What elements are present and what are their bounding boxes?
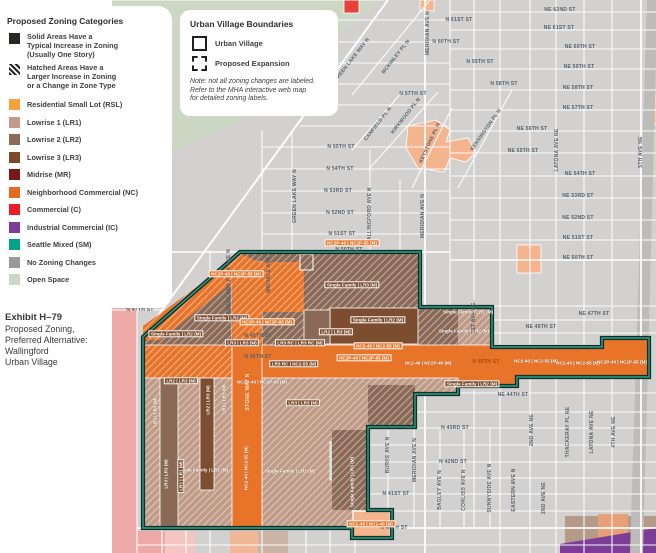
boundary-legend-item: Proposed Expansion xyxy=(190,56,330,71)
legend-item-label: Midrise (MR) xyxy=(27,170,71,179)
zone-label: LR3 | LR3 (M) xyxy=(163,459,168,488)
zone-label: NC2-40 | NC2-55 (M) xyxy=(243,446,248,490)
zone-label: NC2P-40 | NC2P-65 (M) xyxy=(597,359,647,364)
zone-color-swatch-icon xyxy=(9,117,20,128)
street-label: 5TH AVE NE xyxy=(638,136,644,167)
street-label: NE 54TH ST xyxy=(565,171,596,177)
legend-item: Commercial (C) xyxy=(7,201,168,219)
zone-label: LR2 | LR3 (M) xyxy=(319,328,353,335)
zone-color-swatch-icon xyxy=(9,239,20,250)
street-label: N 57TH ST xyxy=(399,91,426,97)
zone-lr2-hatch-overlay xyxy=(368,385,415,427)
street-label: MERIDIAN AVE N xyxy=(420,194,426,238)
street-label: 4TH AVE NE xyxy=(611,416,617,447)
boundary-legend-panel: Urban Village Boundaries Urban VillagePr… xyxy=(180,10,338,116)
pink-block xyxy=(137,531,165,553)
street-label: CORLISS AVE N xyxy=(461,469,467,511)
zone-label: Single Family | LR1 (M) xyxy=(443,309,493,314)
street-label: THACKERAY PL NE xyxy=(565,407,571,458)
zone-label: Single Family | LR2 (M) xyxy=(148,330,203,337)
street-label: BURKE AVE N xyxy=(385,437,391,474)
legend-explainer-text: Solid Areas Have aTypical Increase in Zo… xyxy=(27,33,118,59)
zone-label: Single Family | LR2 (M) xyxy=(439,328,489,333)
zone-color-swatch-icon xyxy=(9,204,20,215)
zone-label: NC2-40 | NC2P-40 (M) xyxy=(405,360,452,365)
street-label: LATONA AVE NE xyxy=(589,411,595,454)
zone-nc-corridor-hatch xyxy=(143,345,232,378)
zone-label: NC2P-40 | NC2P-55 (M) xyxy=(209,270,264,277)
street-label: NE 50TH ST xyxy=(563,255,594,261)
zone-label: Single Family | LR3 (M) xyxy=(324,281,379,288)
zone-label: NC2P-40 | NC2P-65 (M) xyxy=(237,379,287,384)
legend-item: No Zoning Changes xyxy=(7,253,168,271)
zone-label: LR3 RC | LR3 RC (M) xyxy=(275,339,325,346)
legend-item: Residential Small Lot (RSL) xyxy=(7,96,168,114)
zone-label: NC2P-40 | NC2P-65 (M) xyxy=(240,318,295,325)
boundary-legend-title: Urban Village Boundaries xyxy=(190,19,330,29)
zone-label: Single Family | LR2 (M) xyxy=(350,316,405,323)
street-label: N 54TH ST xyxy=(326,166,353,172)
zone-label: NC2P-40 | NC2P-55 (M) xyxy=(337,354,392,361)
zone-color-swatch-icon xyxy=(9,134,20,145)
street-label: WALLINGFORD AVE N xyxy=(367,187,373,245)
legend-item-label: Commercial (C) xyxy=(27,205,81,214)
legend-item-label: Lowrise 1 (LR1) xyxy=(27,118,81,127)
street-label: EASTERN AVE N xyxy=(511,468,517,511)
street-label: N 45TH ST xyxy=(244,354,271,360)
zone-color-swatch-icon xyxy=(9,274,20,285)
pink-block xyxy=(165,531,195,553)
zone-color-swatch-icon xyxy=(9,222,20,233)
zone-lr3-block xyxy=(330,308,418,344)
street-label: NE 47TH ST xyxy=(579,311,610,317)
street-label: NE 53RD ST xyxy=(562,193,593,199)
legend-explainer-line: or a Change in Zone Type xyxy=(27,82,116,91)
street-label: N 53RD ST xyxy=(324,188,352,194)
legend-item-label: Residential Small Lot (RSL) xyxy=(27,100,122,109)
boundary-note-line: for detailed zoning labels. xyxy=(190,95,330,104)
zone-label: LR1 | LR1 (M) xyxy=(177,459,184,493)
exhibit-line: Preferred Alternative: xyxy=(5,335,111,346)
zone-label: NC2-40 | NC2-55 (M) xyxy=(354,342,403,349)
legend-item: Industrial Commercial (IC) xyxy=(7,218,168,236)
legend-item: Neighborhood Commercial (NC) xyxy=(7,183,168,201)
zone-label: LR2 | LR3 (M) xyxy=(221,384,226,413)
zone-expansion-box-hatch xyxy=(300,254,313,270)
legend-explainer-line: (Usually One Story) xyxy=(27,51,118,60)
legend-item: Lowrise 3 (LR3) xyxy=(7,148,168,166)
street-label: NE 51ST ST xyxy=(563,235,594,241)
urban-village-outline-icon xyxy=(192,36,207,51)
legend-item: Seattle Mixed (SM) xyxy=(7,236,168,254)
boundary-legend-items: Urban VillageProposed Expansion xyxy=(190,36,330,71)
street-label: NE 57TH ST xyxy=(563,105,594,111)
exhibit-line: Proposed Zoning, xyxy=(5,324,111,335)
street-label: N 50TH ST xyxy=(335,247,362,253)
street-label: BAGLEY AVE N xyxy=(437,470,443,510)
street-label: N 51ST ST xyxy=(329,231,356,237)
legend-item-label: No Zoning Changes xyxy=(27,258,96,267)
street-label: GREEN LAKE WAY N xyxy=(292,169,298,223)
street-label: N 59TH ST xyxy=(466,59,493,65)
boundary-legend-note: Note: not all zoning changes are labeled… xyxy=(190,78,330,104)
zone-label: Single Family | LR1 (M) xyxy=(178,467,228,472)
street-label: N 61ST ST xyxy=(446,17,473,23)
street-label: N 52ND ST xyxy=(326,210,354,216)
zoning-legend-panel: Proposed Zoning Categories Solid Areas H… xyxy=(0,6,172,308)
street-label: NE 52ND ST xyxy=(562,215,593,221)
street-label: LATONA AVE NE xyxy=(554,129,560,172)
zone-label: LR2 | LR3 (M) xyxy=(152,397,157,426)
street-label: NE 62ND ST xyxy=(544,7,575,13)
solid-swatch-icon xyxy=(9,33,20,44)
street-label: 2ND AVE NE xyxy=(541,482,547,514)
zone-label: NC1-40 | NC1-40 (M) xyxy=(347,520,396,527)
proposed-expansion-outline-icon xyxy=(192,56,207,71)
exhibit-title: Exhibit H–79 xyxy=(5,312,111,323)
street-label: 2ND AVE NE xyxy=(529,414,535,446)
zoning-legend-title: Proposed Zoning Categories xyxy=(7,16,168,26)
legend-item-label: Open Space xyxy=(27,275,69,284)
street-label: N 42ND ST xyxy=(439,459,467,465)
street-label: NE 44TH ST xyxy=(498,392,529,398)
zone-color-swatch-icon xyxy=(9,169,20,180)
boundary-item-label: Proposed Expansion xyxy=(215,59,290,68)
street-label: N 41ST ST xyxy=(383,491,410,497)
street-label: MERIDIAN AVE N xyxy=(425,11,431,55)
zone-label: NC2P-40 | NC2P-55 (M) xyxy=(325,239,380,246)
street-label: NE 60TH ST xyxy=(565,44,596,50)
zoning-legend-explainers: Solid Areas Have aTypical Increase in Zo… xyxy=(7,33,168,91)
legend-explainer-text: Hatched Areas Have aLarger Increase in Z… xyxy=(27,64,116,90)
legend-item-label: Lowrise 2 (LR2) xyxy=(27,135,81,144)
street-label: N 55TH ST xyxy=(327,144,354,150)
exhibit-line: Wallingford xyxy=(5,346,111,357)
boundary-note-line: Note: not all zoning changes are labeled… xyxy=(190,78,330,87)
boundary-legend-item: Urban Village xyxy=(190,36,330,51)
zone-label: NC2-40 | NC2-55 (M) xyxy=(556,360,600,365)
street-label: N 60TH ST xyxy=(432,39,459,45)
legend-item: Lowrise 2 (LR2) xyxy=(7,131,168,149)
street-label: NE 61ST ST xyxy=(544,25,575,31)
map-exhibit: GREEN LAKE WAY NMCKINLEY PL NMERIDIAN AV… xyxy=(0,0,656,553)
legend-item-label: Neighborhood Commercial (NC) xyxy=(27,188,138,197)
zone-label: LR2 | LR3 (M) xyxy=(205,385,210,414)
street-label: SUNNYSIDE AVE N xyxy=(487,463,493,512)
zone-label: LR3 | LR3 (M) xyxy=(286,399,320,406)
legend-explainer-row: Solid Areas Have aTypical Increase in Zo… xyxy=(7,33,168,59)
street-label: NE 58TH ST xyxy=(563,85,594,91)
street-label: NE 55TH ST xyxy=(508,148,539,154)
hatched-swatch-icon xyxy=(9,64,20,75)
rsl-area xyxy=(517,245,541,273)
zone-label: LR3 | LR3 (M) xyxy=(225,339,259,346)
boundary-item-label: Urban Village xyxy=(215,39,263,48)
exhibit-lines: Proposed Zoning,Preferred Alternative:Wa… xyxy=(5,324,111,368)
legend-item-label: Lowrise 3 (LR3) xyxy=(27,153,81,162)
street-label: N 45TH ST xyxy=(472,359,499,365)
street-label: N 43RD ST xyxy=(441,425,469,431)
street-label: N 58TH ST xyxy=(490,81,517,87)
legend-item: Open Space xyxy=(7,271,168,289)
zone-label: Single Family | LR1 (M) xyxy=(265,468,315,473)
street-label: WOODLAND PARK AVE N xyxy=(226,249,232,315)
street-label: NE 59TH ST xyxy=(564,64,595,70)
zone-color-swatch-icon xyxy=(9,187,20,198)
legend-item: Midrise (MR) xyxy=(7,166,168,184)
street-label: NE 46TH ST xyxy=(526,324,557,330)
zone-label: LR3 RC | NC2-55 (M) xyxy=(269,360,318,367)
zone-label: NC2-40 | NC2-55 (M) xyxy=(514,358,558,363)
street-label: MIDVALE AVE N xyxy=(266,251,272,293)
legend-item: Lowrise 1 (LR1) xyxy=(7,113,168,131)
legend-explainer-row: Hatched Areas Have aLarger Increase in Z… xyxy=(7,64,168,90)
zone-color-swatch-icon xyxy=(9,152,20,163)
legend-item-label: Industrial Commercial (IC) xyxy=(27,223,118,232)
zone-color-swatch-icon xyxy=(9,99,20,110)
zone-label: Single Family | LR3 (M) xyxy=(349,457,354,507)
street-label: N 46TH ST xyxy=(244,333,271,339)
exhibit-line: Urban Village xyxy=(5,357,111,368)
street-label: NE 56TH ST xyxy=(517,126,548,132)
zone-label: Single Family | LR2 (M) xyxy=(444,380,499,387)
zone-lr2-strip xyxy=(160,378,178,528)
street-label: MERIDIAN AVE N xyxy=(412,438,418,482)
zone-color-swatch-icon xyxy=(9,257,20,268)
zoning-legend-items: Residential Small Lot (RSL)Lowrise 1 (LR… xyxy=(7,96,168,289)
exhibit-caption: Exhibit H–79 Proposed Zoning,Preferred A… xyxy=(5,312,111,368)
boundary-note-line: Refer to the MHA interactive web map xyxy=(190,87,330,96)
legend-item-label: Seattle Mixed (SM) xyxy=(27,240,91,249)
commercial-area xyxy=(344,0,359,13)
zone-label: LR2 | LR3 (M) xyxy=(164,377,198,384)
peach-block xyxy=(230,531,258,553)
